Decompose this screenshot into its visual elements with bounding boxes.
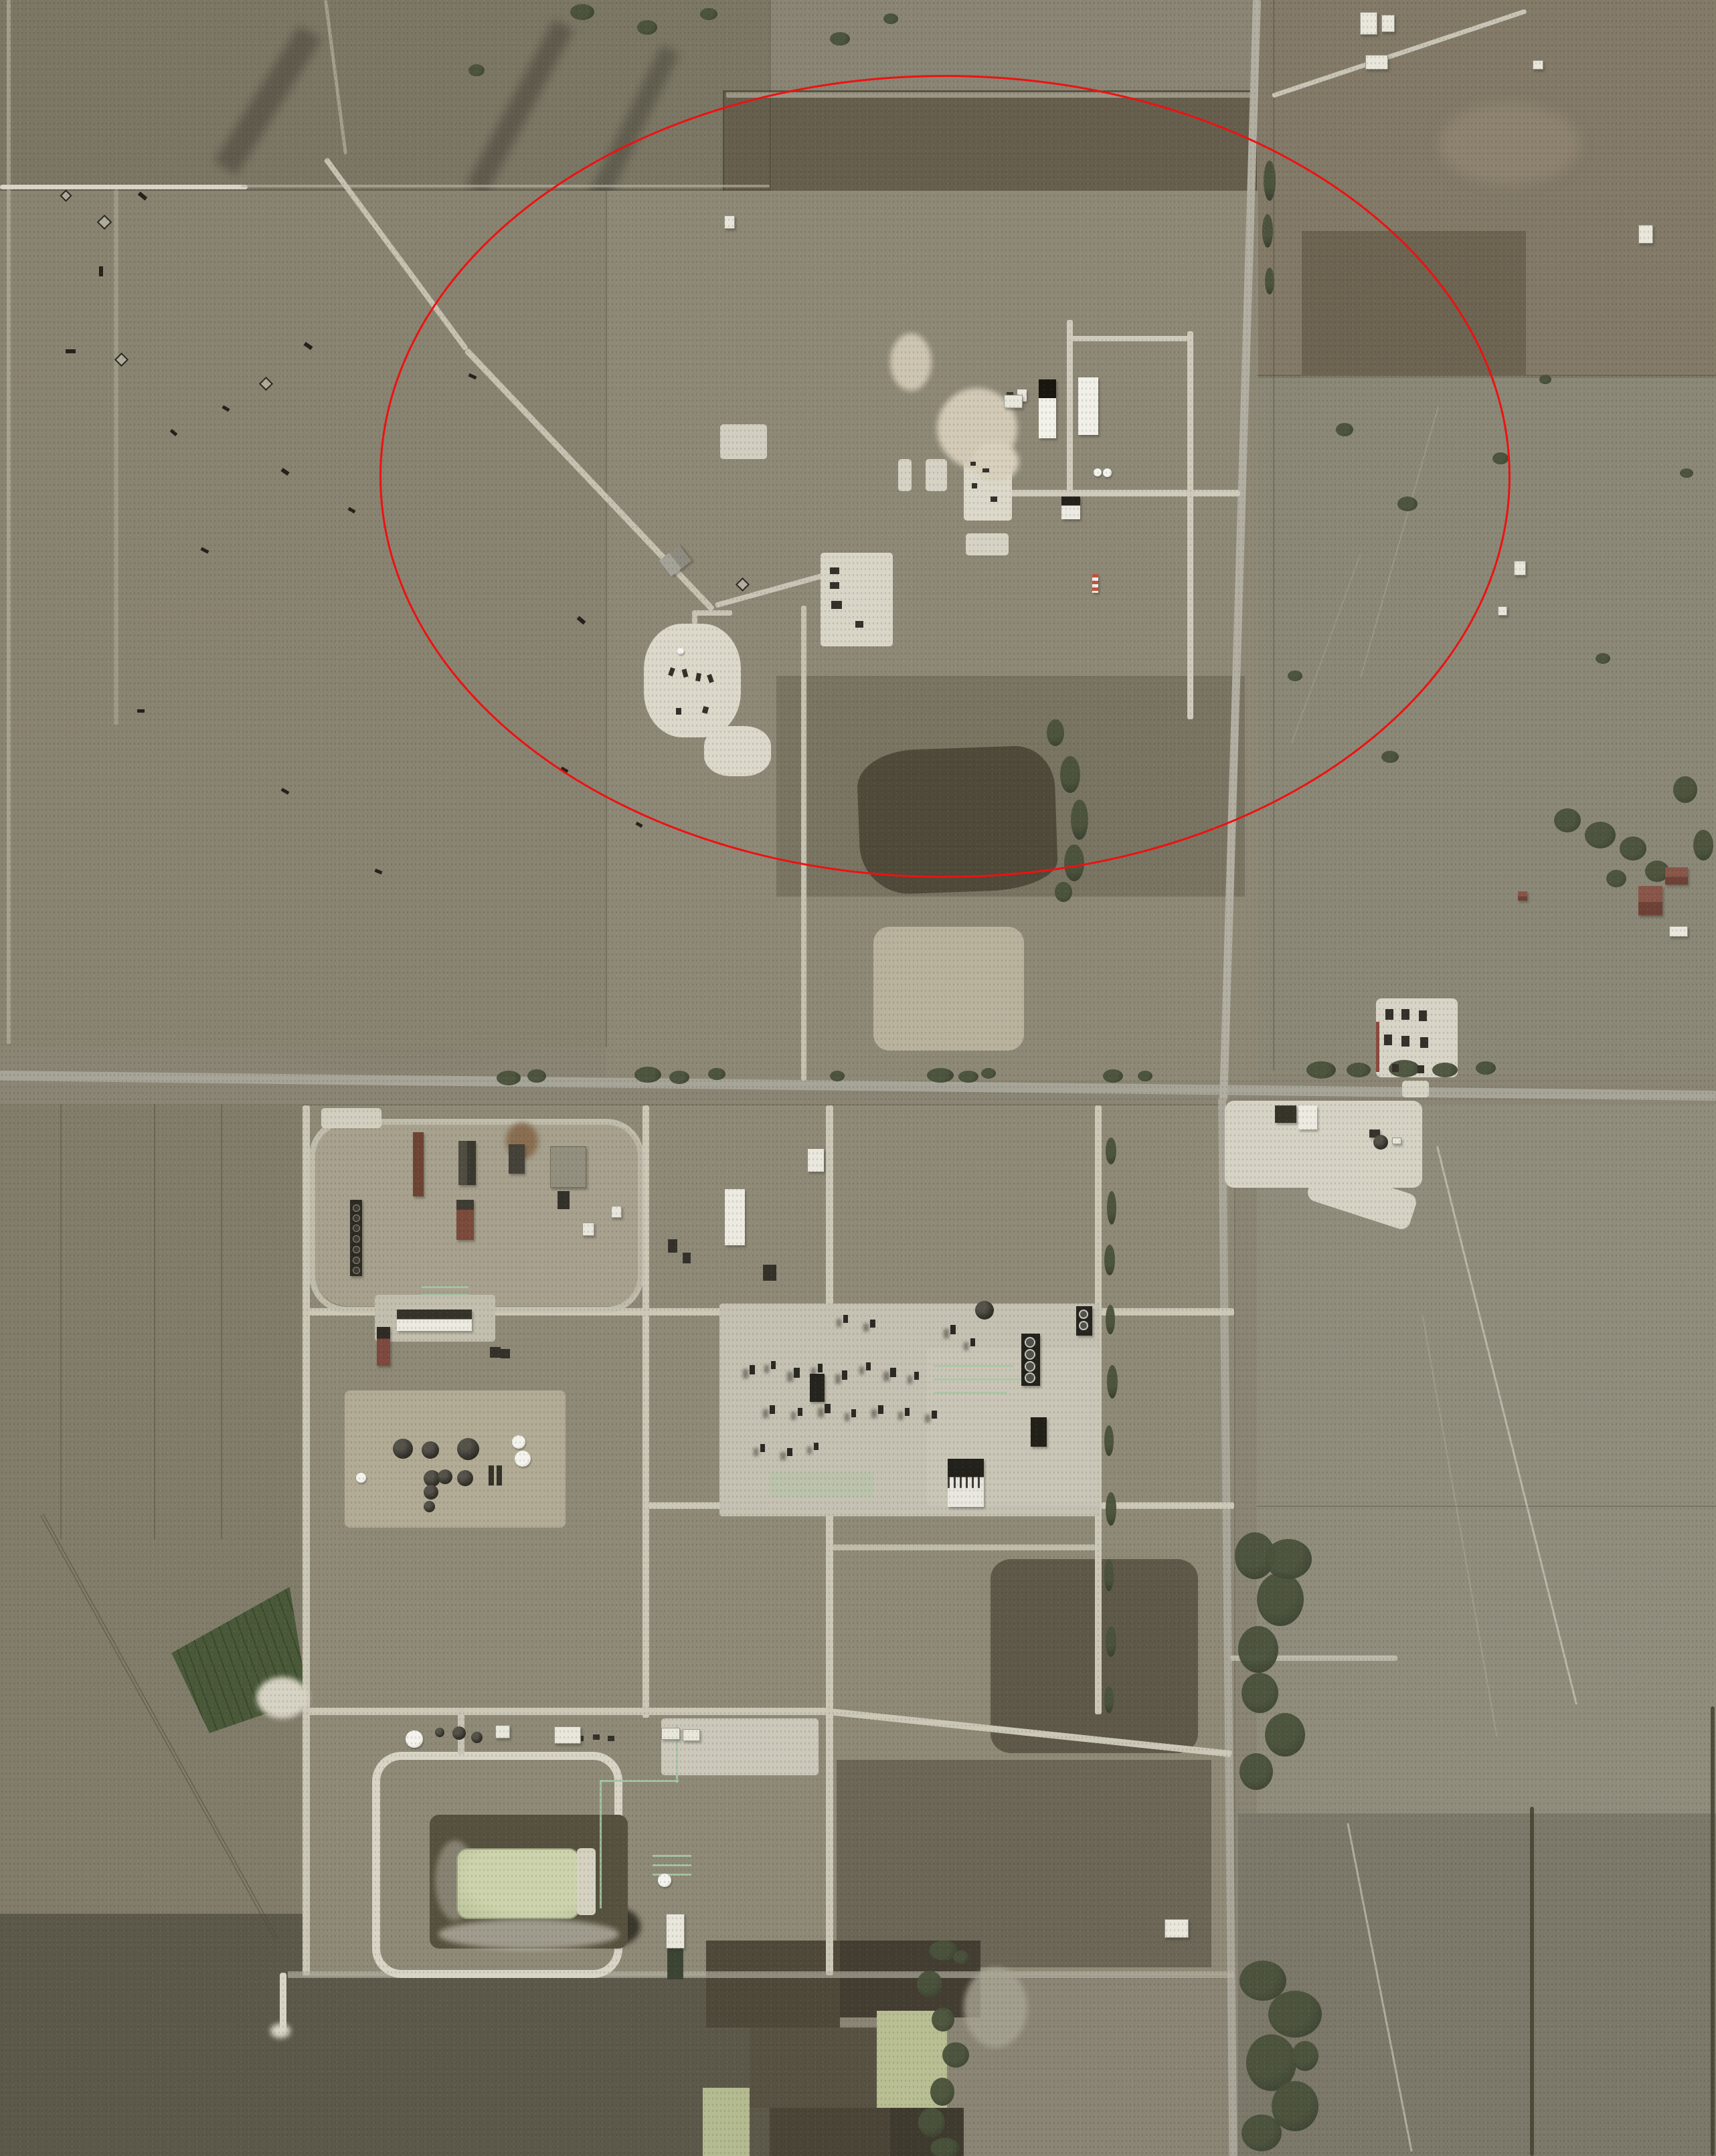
storage-tank-white: [515, 1451, 531, 1467]
process-tower: [750, 1365, 755, 1374]
equipment-unit: [1385, 1009, 1393, 1020]
process-tower: [878, 1405, 883, 1414]
tree-clump: [1268, 1991, 1322, 2038]
equipment-unit: [1401, 1009, 1409, 1020]
barn-red-roof: [1665, 867, 1688, 885]
tree-clump: [883, 13, 898, 24]
tree-clump: [953, 1951, 969, 1964]
equipment-unit: [501, 1349, 510, 1358]
process-tower: [771, 1361, 776, 1369]
equipment-unit: [593, 1734, 600, 1740]
farm-shed: [1669, 926, 1688, 937]
farm-shed: [495, 1725, 510, 1738]
process-tower: [818, 1364, 823, 1372]
farm-shed: [1638, 225, 1653, 244]
ground-mark: [170, 429, 178, 436]
farm-shed: [554, 1726, 581, 1744]
tree-clump: [1106, 1138, 1116, 1164]
silo-port: [353, 1204, 360, 1212]
storage-tank-dark: [457, 1470, 473, 1486]
tree-clump: [1476, 1061, 1496, 1075]
ground-mark: [347, 507, 355, 514]
cattle-pen-marker: [97, 215, 112, 230]
storage-tank-dark: [393, 1439, 413, 1459]
tree-clump: [1673, 776, 1697, 803]
storage-tank-white: [512, 1435, 525, 1449]
tree-clump: [981, 1068, 996, 1079]
storage-tank-white: [406, 1730, 423, 1748]
equipment-unit: [683, 1253, 691, 1263]
equipment-unit: [1418, 1065, 1424, 1073]
process-tower: [760, 1444, 765, 1452]
cooling-fan: [1079, 1321, 1088, 1330]
equipment-unit: [1419, 1010, 1427, 1021]
tree-clump: [1241, 1673, 1278, 1713]
tree-clump: [958, 1071, 978, 1083]
tree-clump: [1306, 1061, 1336, 1079]
barn-red-roof: [1638, 886, 1662, 915]
tree-clump: [1106, 1492, 1116, 1526]
storage-tank-dark: [471, 1732, 483, 1743]
tree-clump: [527, 1069, 546, 1083]
farm-shed: [1533, 60, 1543, 70]
tree-clump: [1106, 1305, 1115, 1334]
cattle-pen-marker: [259, 377, 273, 391]
farm-shed: [1381, 15, 1395, 32]
tree-clump: [1606, 870, 1626, 887]
tree-clump: [1539, 375, 1551, 384]
tree-clump: [1107, 1191, 1116, 1225]
tree-clump: [1104, 1686, 1114, 1713]
equipment-unit: [557, 1191, 570, 1209]
tree-clump: [1381, 751, 1399, 763]
tree-clump: [1106, 1626, 1116, 1657]
equipment-unit: [1401, 1036, 1409, 1047]
silo-port: [353, 1215, 360, 1222]
equipment-unit: [489, 1465, 494, 1486]
tree-clump: [1103, 1069, 1123, 1083]
equipment-unit: [608, 1736, 614, 1741]
tree-clump: [708, 1068, 725, 1080]
equipment-unit: [490, 1347, 501, 1358]
tree-clump: [570, 4, 594, 20]
tree-clump: [497, 1071, 521, 1085]
tree-clump: [1104, 1425, 1114, 1456]
tree-clump: [927, 1068, 954, 1083]
tree-clump: [669, 1071, 689, 1084]
ground-mark: [201, 547, 209, 553]
process-tower: [851, 1409, 856, 1417]
silo-port: [353, 1257, 360, 1264]
ground-mark: [280, 468, 289, 476]
tree-clump: [1585, 822, 1616, 848]
process-tower: [905, 1408, 910, 1416]
process-tower: [890, 1368, 896, 1377]
tree-clump: [1104, 1559, 1114, 1591]
process-tower: [970, 1338, 975, 1346]
tree-clump: [830, 32, 850, 46]
tree-clump: [1104, 1245, 1115, 1275]
process-tower: [770, 1405, 775, 1414]
ground-mark: [66, 349, 76, 353]
farm-shed: [1392, 1138, 1401, 1144]
cooling-fan: [1025, 1361, 1035, 1372]
storage-tank-dark: [975, 1301, 994, 1320]
red-ellipse-annotation: [379, 75, 1511, 878]
farm-shed: [1514, 561, 1526, 575]
tree-clump: [1596, 653, 1610, 664]
tree-clump: [1554, 808, 1581, 832]
cooling-fan: [1025, 1349, 1035, 1360]
process-tower: [914, 1372, 919, 1380]
storage-tank-dark: [452, 1726, 466, 1740]
tree-clump: [942, 2042, 969, 2068]
cattle-pen-marker: [60, 189, 72, 201]
tree-clump: [1432, 1063, 1458, 1077]
tree-clump: [1693, 830, 1713, 861]
tree-clump: [468, 64, 485, 76]
farm-shed: [582, 1223, 594, 1236]
tree-clump: [1292, 2041, 1318, 2071]
tree-clump: [1347, 1063, 1371, 1077]
storage-tank-dark: [457, 1438, 479, 1460]
storage-tank-dark: [424, 1485, 438, 1500]
farm-shed: [1360, 12, 1377, 35]
process-tower: [798, 1408, 802, 1416]
cooling-fan: [1025, 1337, 1035, 1348]
storage-tank-dark: [424, 1501, 435, 1512]
silo-port: [353, 1246, 360, 1253]
tree-clump: [1239, 1753, 1273, 1790]
ground-mark: [374, 869, 382, 875]
aerial-photo: [0, 0, 1716, 2156]
ground-mark: [303, 342, 313, 350]
equipment-unit: [668, 1239, 677, 1253]
ground-mark: [222, 406, 230, 412]
tree-clump: [700, 8, 717, 20]
process-tower: [843, 1315, 848, 1323]
farm-shed: [1165, 1919, 1189, 1938]
farm-shed: [1498, 606, 1507, 616]
silo-port: [353, 1235, 360, 1243]
storage-tank-dark: [422, 1441, 439, 1459]
tree-clump: [1265, 1713, 1305, 1757]
silo-port: [353, 1267, 360, 1274]
equipment-unit: [763, 1265, 776, 1281]
tree-clump: [932, 2007, 954, 2032]
tree-clump: [918, 2108, 945, 2137]
tree-clump: [1107, 1365, 1118, 1399]
process-tower: [814, 1443, 819, 1450]
farm-shed: [666, 1914, 685, 1949]
storage-tank-dark: [438, 1469, 452, 1484]
tree-clump: [1620, 836, 1646, 861]
process-tower: [825, 1404, 831, 1413]
tree-clump: [634, 1067, 661, 1083]
ground-mark: [137, 709, 145, 713]
ground-mark: [635, 822, 642, 828]
cattle-pen-marker: [114, 353, 128, 367]
process-tower: [870, 1320, 875, 1328]
tree-clump: [637, 20, 657, 35]
farm-shed: [1365, 55, 1388, 70]
equipment-unit: [1420, 1037, 1428, 1048]
tree-clump: [930, 2078, 954, 2106]
tree-clump: [1238, 1626, 1278, 1673]
process-tower: [842, 1370, 847, 1380]
tree-clump: [830, 1071, 845, 1081]
tree-clump: [1241, 2115, 1282, 2151]
storage-tank-white: [658, 1874, 671, 1887]
farm-shed: [683, 1729, 700, 1741]
ground-mark: [138, 191, 148, 201]
process-tower: [794, 1368, 800, 1378]
silo-port: [353, 1225, 360, 1232]
tree-clump: [1257, 1573, 1304, 1626]
tree-clump: [1138, 1071, 1152, 1081]
cooling-fan: [1079, 1310, 1088, 1319]
farm-shed: [661, 1728, 680, 1740]
barn-red-roof: [1518, 891, 1527, 901]
storage-tank-white: [356, 1473, 366, 1483]
equipment-unit: [1384, 1035, 1392, 1045]
equipment-unit: [497, 1465, 502, 1486]
equipment-unit: [1392, 1064, 1399, 1072]
process-tower: [787, 1448, 792, 1456]
process-tower: [932, 1411, 937, 1419]
farm-shed: [611, 1206, 622, 1218]
tree-clump: [1680, 468, 1693, 478]
tree-clump: [1265, 1539, 1312, 1579]
ground-mark: [99, 266, 103, 276]
tree-clump: [930, 2138, 960, 2156]
process-tower: [866, 1362, 871, 1370]
cooling-fan: [1025, 1372, 1035, 1383]
ground-mark: [281, 788, 290, 794]
storage-tank-dark: [1373, 1135, 1388, 1150]
tree-clump: [1055, 882, 1072, 902]
tree-clump: [917, 1971, 942, 1997]
process-tower: [950, 1325, 956, 1334]
storage-tank-dark: [435, 1728, 444, 1737]
